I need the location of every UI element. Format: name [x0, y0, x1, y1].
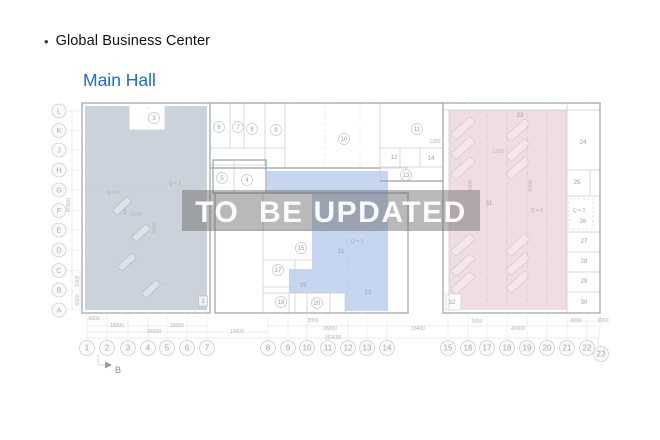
grid-column-label: 7 — [205, 344, 210, 353]
dimension-value: 3000 — [597, 318, 608, 324]
floor-plan-viewer: • Global Business Center Main Hall — [0, 0, 660, 440]
dimension-value: 60000 — [66, 198, 72, 212]
grid-column-label: 19 — [523, 344, 532, 353]
dimension-value: 153600 — [325, 335, 342, 341]
room-number: 11 — [414, 127, 421, 133]
dimension-value: 6000 — [528, 180, 534, 191]
grid-column-label: 12 — [344, 344, 353, 353]
grid-column-label: 21 — [563, 344, 572, 353]
room-number: 27 — [581, 239, 588, 245]
room-number: 24 — [580, 140, 587, 146]
room-number: 28 — [581, 259, 588, 265]
floor-plan-drawing: LKJHGFEDCBA 1234567891011121314151617181… — [0, 0, 660, 440]
dimension-value: 6000 — [88, 316, 99, 322]
grid-column-label: 22 — [583, 344, 592, 353]
room-number: 22 — [365, 290, 372, 296]
room-number: 29 — [581, 279, 588, 285]
dimension-value: 36000 — [323, 326, 337, 332]
room-number: 32 — [449, 300, 456, 306]
grid-row-label: K — [56, 126, 61, 135]
dimension-value: 1300 — [492, 149, 503, 155]
dimension-value: 18000 — [110, 323, 124, 329]
grid-column-label: 13 — [363, 344, 372, 353]
room-number: 10 — [341, 137, 348, 143]
capacity-note: Q = 3 — [351, 239, 364, 245]
watermark: TO BE UPDATED — [182, 190, 480, 231]
dimension-value: 2000 — [307, 318, 318, 324]
room-number: 25 — [574, 180, 581, 186]
capacity-note: Q = 3 — [573, 208, 586, 214]
room-number: 26 — [580, 219, 587, 225]
capacity-note: Q = 3 — [169, 181, 182, 187]
room-number: 12 — [391, 155, 398, 161]
grid-row-label: D — [56, 246, 62, 255]
grid-row-label: J — [57, 146, 61, 155]
dimension-value: 18400 — [411, 326, 425, 332]
room-number: 13 — [403, 173, 410, 179]
grid-row-label: L — [57, 107, 61, 116]
grid-row-label: B — [56, 286, 61, 295]
capacity-note: Q = 3 — [531, 208, 544, 214]
dimension-value: 1300 — [429, 139, 440, 145]
grid-column-label: 20 — [543, 344, 552, 353]
grid-column-label: 4 — [146, 344, 151, 353]
dimension-value: 6000 — [75, 294, 81, 305]
dimension-value: 2000 — [130, 212, 141, 218]
room-number: 23 — [517, 113, 524, 119]
capacity-note: Q = 3 — [107, 190, 120, 196]
grid-column-label: 15 — [444, 344, 453, 353]
grid-column-labels: 1234567891011121314151617181920212223 — [80, 341, 609, 362]
dimension-value: 18000 — [170, 323, 184, 329]
grid-column-label: 5 — [165, 344, 170, 353]
room-number: 14 — [428, 156, 435, 162]
room-number: 18 — [278, 300, 285, 306]
grid-column-label: 14 — [383, 344, 392, 353]
grid-row-label: A — [56, 306, 61, 315]
grid-column-label: 23 — [597, 350, 606, 359]
room-number: 17 — [275, 268, 282, 274]
watermark-text: TO BE UPDATED — [195, 196, 467, 229]
grid-column-label: 8 — [266, 344, 271, 353]
grid-column-label: 9 — [286, 344, 291, 353]
room-number: 21 — [338, 249, 345, 255]
dimension-value: 1000 — [471, 319, 482, 325]
dimension-value: 36000 — [147, 329, 161, 335]
grid-column-label: 11 — [324, 344, 333, 353]
dimension-value: 6000 — [468, 180, 474, 191]
grid-column-label: 18 — [503, 344, 512, 353]
section-marker-label: B — [115, 365, 121, 375]
grid-row-label: E — [56, 226, 61, 235]
grid-column-label: 1 — [85, 344, 90, 353]
grid-column-label: 6 — [185, 344, 190, 353]
grid-column-label: 3 — [126, 344, 131, 353]
grid-row-label: G — [56, 186, 62, 195]
room-number: 30 — [581, 300, 588, 306]
dimension-value: 6000 — [75, 275, 81, 286]
room-number: 19 — [300, 283, 307, 289]
dimension-value: 18000 — [230, 329, 244, 335]
dimension-value: 2000 — [152, 222, 158, 233]
room-number: 31 — [486, 201, 493, 207]
grid-row-label: H — [56, 166, 61, 175]
grid-column-label: 2 — [105, 344, 110, 353]
dimension-value: 45000 — [511, 326, 525, 332]
room-number: 20 — [314, 301, 321, 307]
grid-column-label: 10 — [303, 344, 312, 353]
grid-row-label: F — [57, 206, 62, 215]
grid-row-label: C — [56, 266, 62, 275]
dimension-value: 6000 — [570, 318, 581, 324]
room-number: 15 — [298, 246, 305, 252]
grid-column-label: 16 — [464, 344, 473, 353]
grid-column-label: 17 — [483, 344, 492, 353]
